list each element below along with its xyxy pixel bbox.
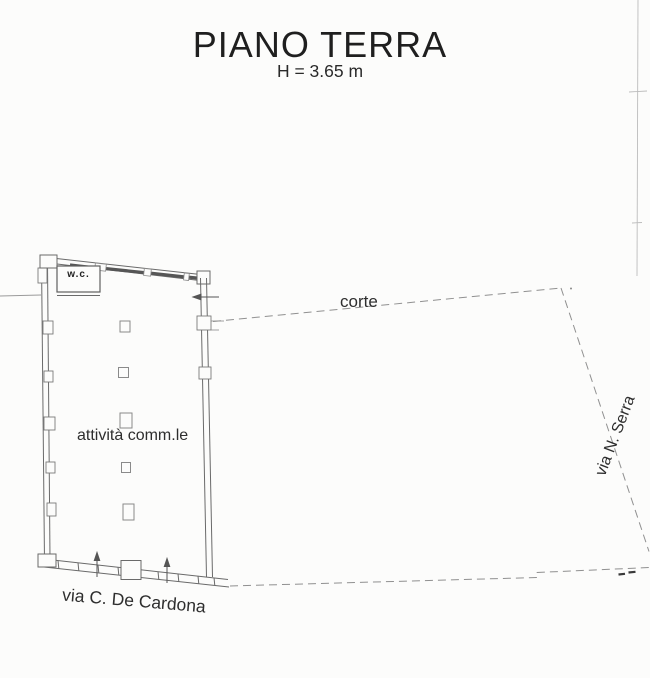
right-wall [197, 278, 224, 577]
floor-plan-drawing [0, 0, 650, 678]
page-fold-line [629, 0, 647, 276]
bottom-wall-shopfront [38, 554, 229, 587]
interior-columns [119, 321, 135, 520]
ceiling-height-note: H = 3.65 m [140, 61, 500, 82]
left-wall [38, 260, 56, 561]
floor-plan-page: PIANO TERRA H = 3.65 m w.c. attività com… [0, 0, 650, 678]
street-boundary-dashed [230, 568, 650, 587]
plan-title: PIANO TERRA [140, 24, 500, 66]
courtyard-label: corte [340, 292, 378, 312]
boundary-corner-dot [570, 288, 572, 290]
edge-marks [619, 572, 636, 575]
wc-room-label: w.c. [57, 269, 100, 280]
commercial-area-label: attività comm.le [77, 427, 188, 445]
reference-line-left [0, 295, 41, 296]
entrance-arrow-icon [193, 294, 219, 300]
courtyard-boundary-dashed [213, 288, 649, 552]
entrance-arrow-icon [164, 559, 169, 584]
